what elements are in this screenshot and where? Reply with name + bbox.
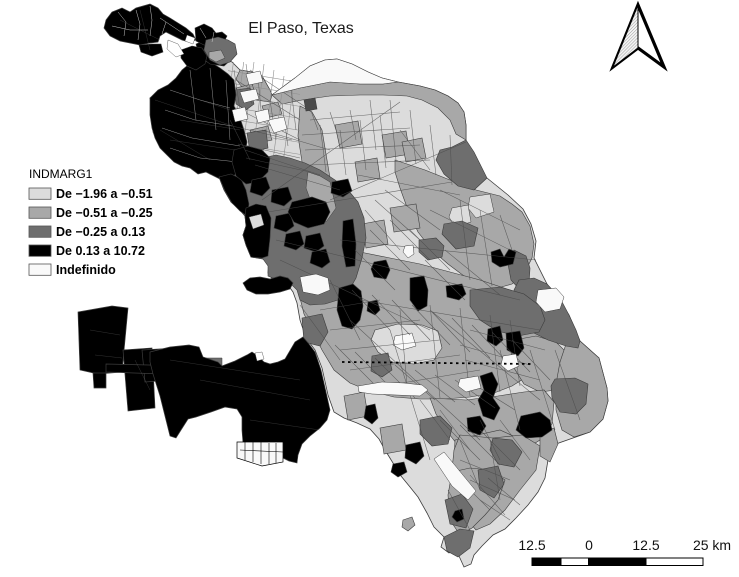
svg-text:De −1.96 a −0.51: De −1.96 a −0.51 — [56, 187, 153, 201]
svg-text:12.5: 12.5 — [518, 537, 545, 553]
svg-text:INDMARG1: INDMARG1 — [29, 167, 93, 181]
svg-text:De −0.25 a 0.13: De −0.25 a 0.13 — [56, 225, 145, 239]
svg-text:Indefinido: Indefinido — [56, 263, 116, 277]
svg-text:El Paso, Texas: El Paso, Texas — [248, 20, 354, 37]
svg-text:De 0.13 a 10.72: De 0.13 a 10.72 — [56, 244, 145, 258]
svg-text:12.5: 12.5 — [632, 537, 659, 553]
svg-text:0: 0 — [585, 537, 593, 553]
svg-text:25 km: 25 km — [693, 537, 731, 553]
svg-text:De −0.51 a −0.25: De −0.51 a −0.25 — [56, 206, 153, 220]
